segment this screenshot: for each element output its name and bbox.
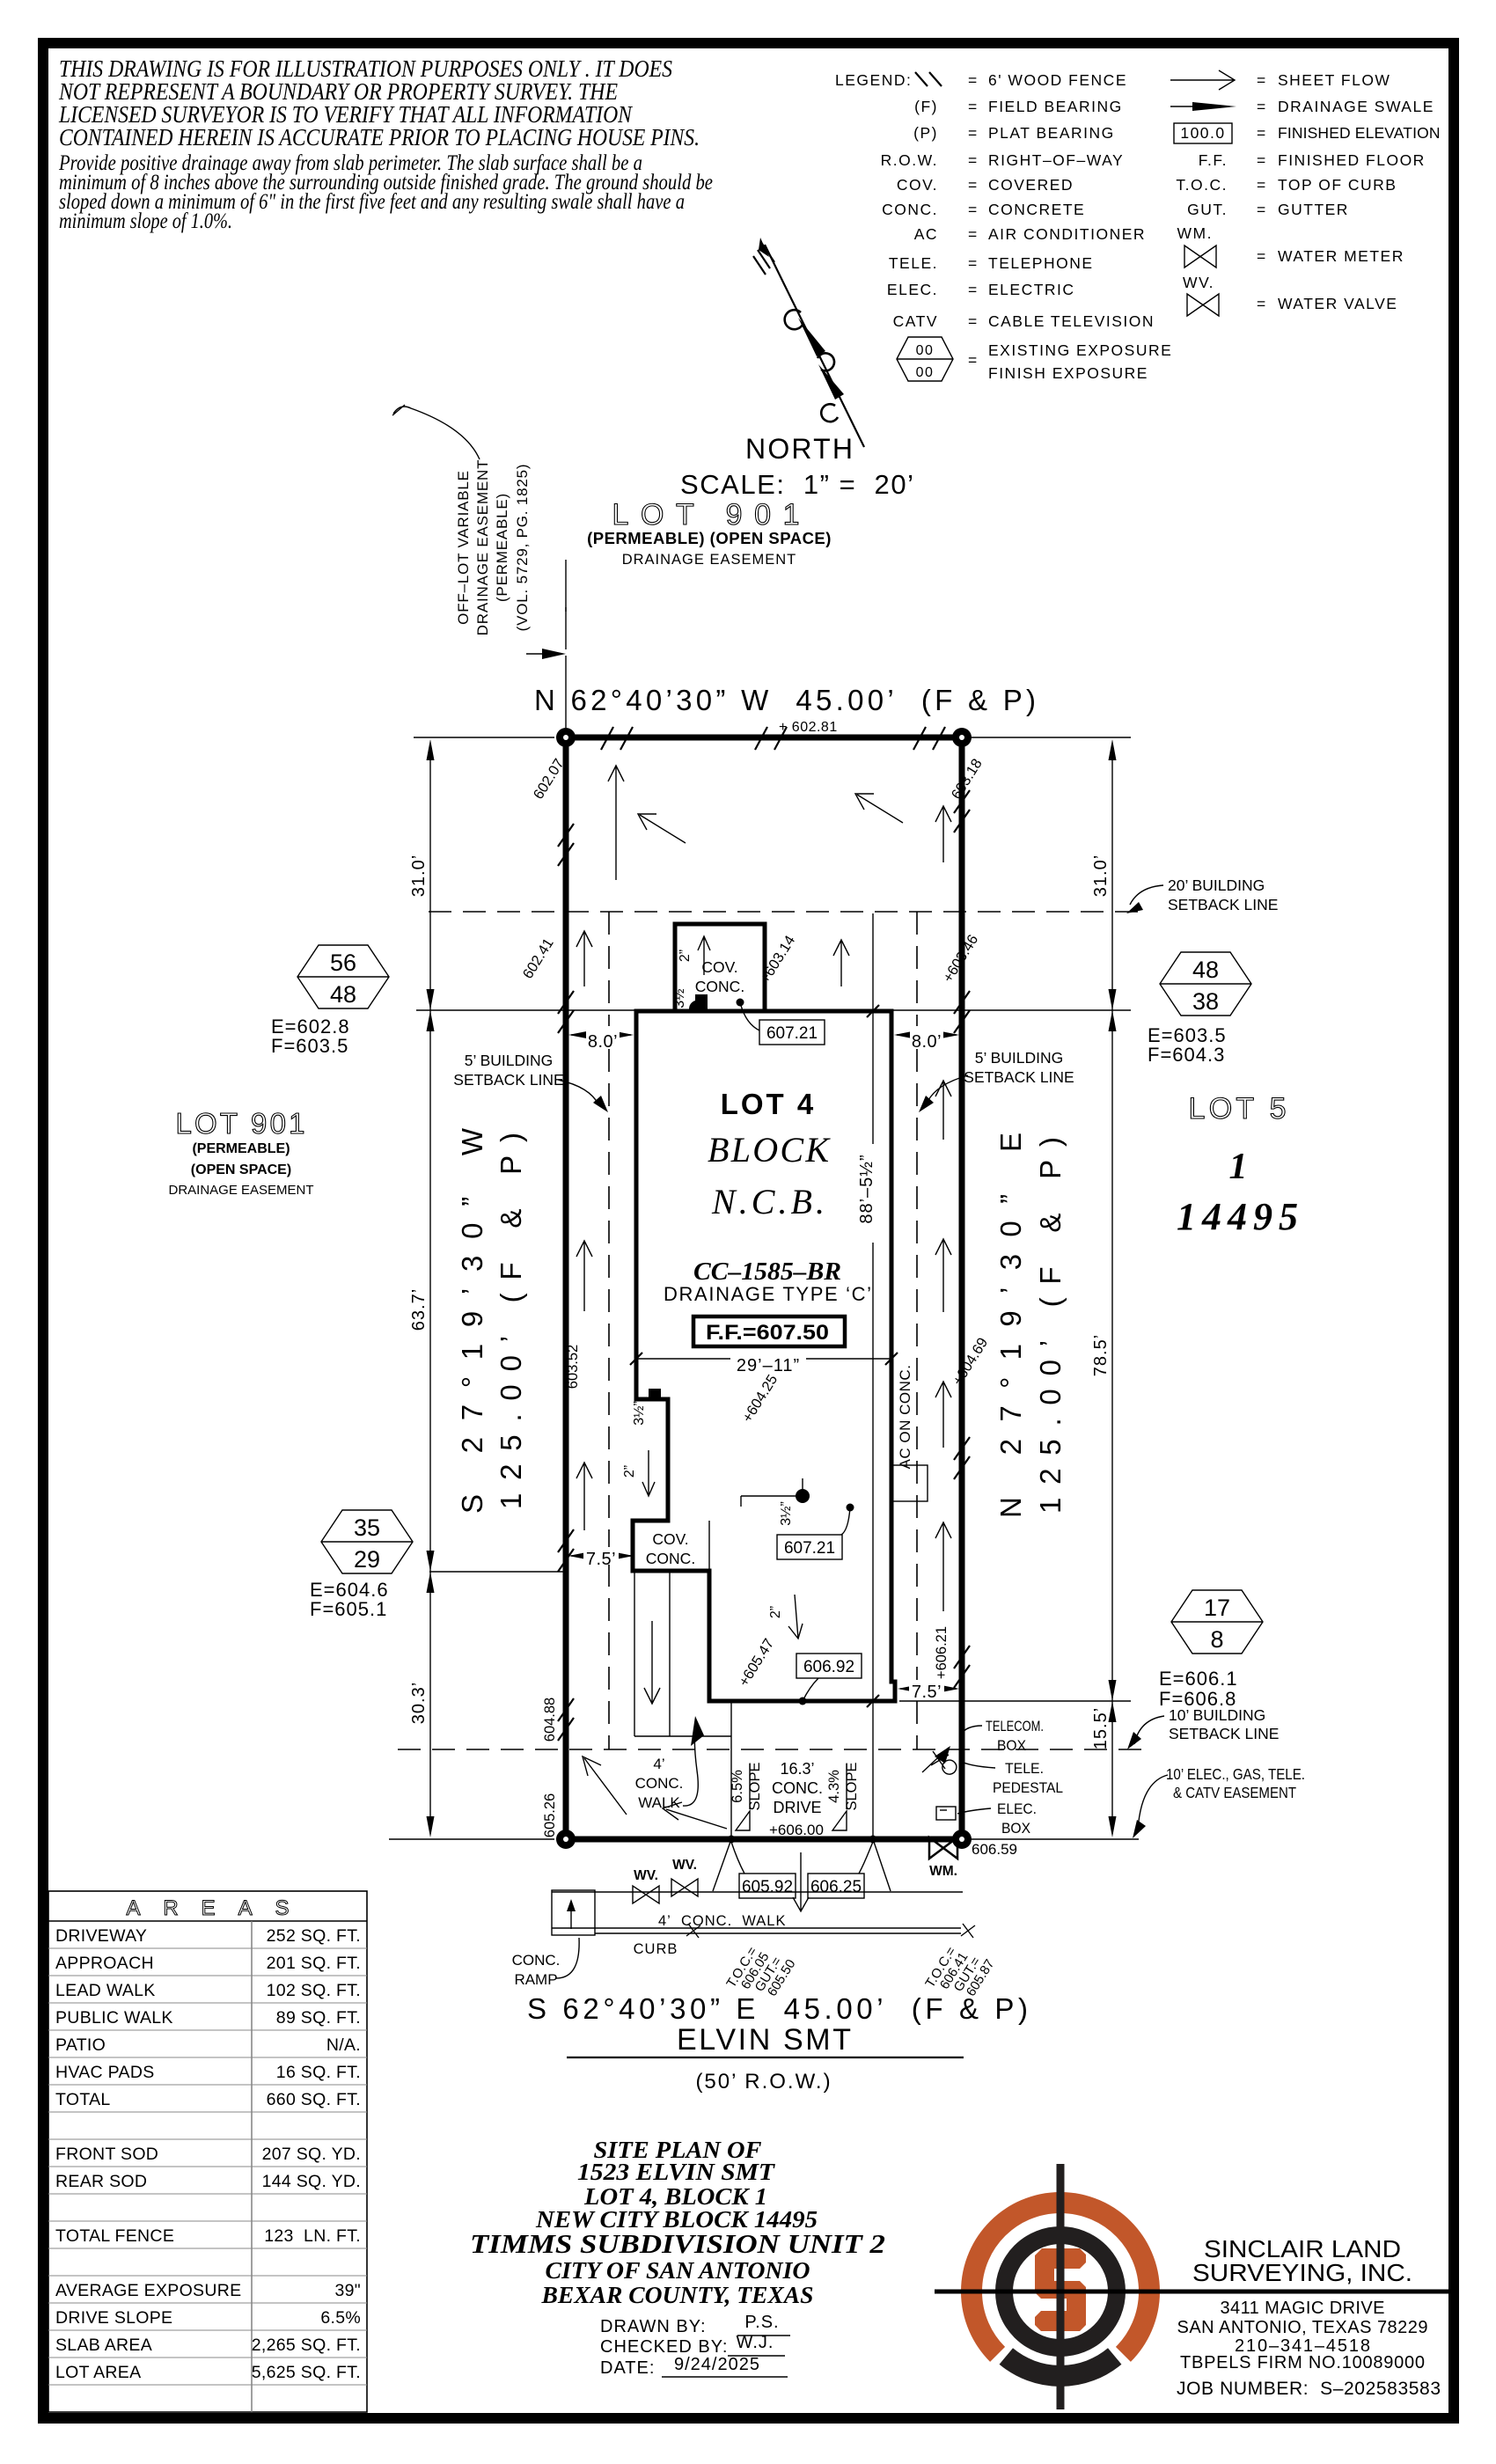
svg-text:TELE.: TELE.	[889, 254, 938, 272]
svg-text:10’ BUILDING: 10’ BUILDING	[1169, 1706, 1265, 1724]
svg-text:TELE.: TELE.	[1005, 1760, 1044, 1777]
svg-text:RIGHT–OF–WAY: RIGHT–OF–WAY	[988, 151, 1124, 169]
svg-text:=: =	[968, 281, 979, 298]
svg-text:BEXAR COUNTY, TEXAS: BEXAR COUNTY, TEXAS	[540, 2282, 813, 2308]
svg-text:LOT 4: LOT 4	[721, 1088, 817, 1120]
svg-text:RAMP: RAMP	[514, 1971, 557, 1988]
svg-text:WATER VALVE: WATER VALVE	[1278, 295, 1397, 312]
svg-text:102 SQ. FT.: 102 SQ. FT.	[267, 1981, 361, 2000]
svg-text:WATER METER: WATER METER	[1278, 247, 1404, 265]
svg-text:SETBACK LINE: SETBACK LINE	[964, 1068, 1074, 1086]
svg-text:2,265 SQ. FT.: 2,265 SQ. FT.	[252, 2336, 361, 2355]
svg-text:CONTAINED HEREIN IS ACCURATE P: CONTAINED HEREIN IS ACCURATE PRIOR TO PL…	[59, 124, 700, 150]
svg-text:8: 8	[1210, 1626, 1223, 1653]
svg-text:GUT.: GUT.	[1187, 201, 1228, 218]
svg-text:606.92: 606.92	[803, 1658, 854, 1676]
svg-text:CONC.: CONC.	[635, 1775, 684, 1792]
svg-text:COVERED: COVERED	[988, 176, 1074, 194]
svg-text:APPROACH: APPROACH	[55, 1954, 154, 1973]
svg-text:30.3’: 30.3’	[409, 1682, 429, 1724]
svg-text:N.C.B.: N.C.B.	[711, 1182, 825, 1221]
svg-text:TOTAL: TOTAL	[55, 2090, 111, 2109]
svg-text:39": 39"	[334, 2281, 361, 2300]
svg-text:BOX: BOX	[1001, 1820, 1030, 1837]
svg-text:AC ON CONC.: AC ON CONC.	[897, 1365, 913, 1470]
svg-text:=: =	[968, 351, 979, 369]
svg-text:DRAINAGE SWALE: DRAINAGE SWALE	[1278, 98, 1434, 115]
svg-text:31.0’: 31.0’	[1091, 854, 1111, 897]
svg-text:+ 602.81: + 602.81	[779, 720, 838, 735]
svg-text:SCALE: 1” = 20’: SCALE: 1” = 20’	[680, 469, 913, 500]
svg-text:LEAD WALK: LEAD WALK	[55, 1981, 156, 2000]
svg-text:COV.: COV.	[897, 176, 938, 194]
svg-text:F.F.: F.F.	[1199, 151, 1228, 169]
svg-text:=: =	[1257, 201, 1267, 218]
svg-text:+606.00: +606.00	[769, 1822, 824, 1838]
svg-text:TBPELS FIRM NO.10089000: TBPELS FIRM NO.10089000	[1180, 2353, 1425, 2372]
svg-text:FINISHED FLOOR: FINISHED FLOOR	[1278, 151, 1426, 169]
svg-text:252 SQ. FT.: 252 SQ. FT.	[267, 1926, 361, 1946]
svg-text:CC–1585–BR: CC–1585–BR	[693, 1258, 841, 1286]
svg-text:=: =	[1257, 71, 1267, 89]
svg-text:5’ BUILDING: 5’ BUILDING	[975, 1049, 1064, 1067]
svg-text:201 SQ. FT.: 201 SQ. FT.	[267, 1954, 361, 1973]
svg-text:BOX: BOX	[997, 1737, 1026, 1754]
svg-text:F=603.5: F=603.5	[271, 1035, 348, 1057]
svg-text:F=604.3: F=604.3	[1148, 1044, 1225, 1066]
svg-text:LEGEND:: LEGEND:	[835, 71, 912, 89]
svg-text:& CATV EASEMENT: & CATV EASEMENT	[1173, 1784, 1296, 1801]
svg-text:31.0’: 31.0’	[409, 854, 429, 897]
svg-text:2”: 2”	[678, 950, 693, 962]
svg-text:29: 29	[354, 1546, 380, 1573]
svg-text:TOTAL FENCE: TOTAL FENCE	[55, 2226, 174, 2246]
svg-text:(VOL. 5729, PG. 1825): (VOL. 5729, PG. 1825)	[514, 464, 531, 632]
svg-text:48: 48	[330, 981, 356, 1008]
svg-text:DRAINAGE TYPE ‘C’: DRAINAGE TYPE ‘C’	[664, 1283, 871, 1305]
svg-text:15.5’: 15.5’	[1091, 1707, 1111, 1749]
svg-text:DRAWN BY:: DRAWN BY:	[600, 2317, 707, 2336]
svg-text:38: 38	[1192, 988, 1219, 1015]
svg-text:CURB: CURB	[634, 1941, 678, 1957]
svg-text:WV.: WV.	[672, 1858, 697, 1873]
svg-text:+606.21: +606.21	[934, 1626, 950, 1679]
svg-text:=: =	[968, 201, 979, 218]
svg-text:6.5%: 6.5%	[320, 2308, 361, 2328]
svg-text:=: =	[1257, 176, 1267, 194]
svg-text:EXISTING EXPOSURE: EXISTING EXPOSURE	[988, 341, 1172, 359]
svg-text:FRONT SOD: FRONT SOD	[55, 2145, 158, 2164]
svg-text:2”: 2”	[622, 1465, 637, 1478]
svg-text:FIELD BEARING: FIELD BEARING	[988, 98, 1123, 115]
svg-text:144 SQ. YD.: 144 SQ. YD.	[262, 2172, 361, 2191]
svg-text:LOT 901: LOT 901	[176, 1107, 305, 1140]
svg-text:BLOCK: BLOCK	[708, 1130, 831, 1170]
svg-text:SETBACK LINE: SETBACK LINE	[453, 1071, 563, 1089]
svg-text:DRAINAGE EASEMENT: DRAINAGE EASEMENT	[622, 552, 797, 568]
svg-text:LOT AREA: LOT AREA	[55, 2363, 141, 2382]
svg-text:606.25: 606.25	[810, 1878, 862, 1896]
svg-text:SETBACK LINE: SETBACK LINE	[1169, 1725, 1279, 1742]
svg-text:3½”: 3½”	[779, 1501, 794, 1526]
svg-text:88’–5½”: 88’–5½”	[857, 1154, 876, 1223]
svg-text:16 SQ. FT.: 16 SQ. FT.	[276, 2063, 361, 2082]
svg-text:=: =	[968, 98, 979, 115]
svg-text:605.92: 605.92	[742, 1878, 793, 1896]
svg-text:TELECOM.: TELECOM.	[986, 1718, 1044, 1734]
svg-text:E=606.1: E=606.1	[1159, 1668, 1238, 1690]
svg-text:AVERAGE EXPOSURE: AVERAGE EXPOSURE	[55, 2281, 241, 2300]
svg-text:(PERMEABLE): (PERMEABLE)	[192, 1141, 290, 1156]
svg-text:123 LN. FT.: 123 LN. FT.	[264, 2226, 361, 2246]
svg-text:PLAT BEARING: PLAT BEARING	[988, 124, 1115, 142]
svg-text:89 SQ. FT.: 89 SQ. FT.	[276, 2008, 361, 2028]
svg-text:00: 00	[916, 343, 935, 358]
svg-text:SHEET FLOW: SHEET FLOW	[1278, 71, 1390, 89]
svg-text:T.O.C.: T.O.C.	[1176, 176, 1228, 194]
svg-text:DRAINAGE EASEMENT: DRAINAGE EASEMENT	[474, 459, 491, 636]
svg-text:(PERMEABLE): (PERMEABLE)	[494, 493, 510, 602]
svg-text:CABLE TELEVISION: CABLE TELEVISION	[988, 312, 1155, 330]
svg-text:COV.: COV.	[652, 1530, 688, 1548]
svg-text:CHECKED BY:: CHECKED BY:	[600, 2337, 728, 2357]
svg-text:2”: 2”	[768, 1606, 783, 1618]
svg-text:TELEPHONE: TELEPHONE	[988, 254, 1094, 272]
svg-text:CONCRETE: CONCRETE	[988, 201, 1085, 218]
svg-text:4.3%: 4.3%	[826, 1770, 842, 1803]
svg-text:=: =	[1257, 247, 1267, 265]
svg-text:WM.: WM.	[929, 1864, 957, 1879]
svg-text:(OPEN SPACE): (OPEN SPACE)	[191, 1162, 291, 1177]
svg-text:AIR CONDITIONER: AIR CONDITIONER	[988, 225, 1146, 243]
svg-text:=: =	[1257, 98, 1267, 115]
svg-text:=: =	[1257, 295, 1267, 312]
svg-text:TIMMS SUBDIVISION UNIT 2: TIMMS SUBDIVISION UNIT 2	[470, 2228, 885, 2259]
svg-text:6.5%: 6.5%	[730, 1770, 745, 1803]
svg-text:7.5’: 7.5’	[912, 1683, 942, 1702]
svg-text:(P): (P)	[913, 124, 938, 142]
svg-text:ELVIN SMT: ELVIN SMT	[677, 2023, 851, 2057]
svg-text:3411 MAGIC DRIVE: 3411 MAGIC DRIVE	[1221, 2299, 1385, 2318]
svg-text:LOT 5: LOT 5	[1189, 1092, 1287, 1126]
svg-text:CONC.: CONC.	[695, 978, 744, 995]
svg-text:CONC.: CONC.	[646, 1550, 695, 1567]
svg-text:REAR SOD: REAR SOD	[55, 2172, 147, 2191]
svg-text:1523 ELVIN SMT: 1523 ELVIN SMT	[577, 2159, 776, 2185]
svg-text:100.0: 100.0	[1180, 124, 1225, 142]
svg-text:SAN ANTONIO, TEXAS 78229: SAN ANTONIO, TEXAS 78229	[1177, 2318, 1428, 2337]
svg-text:7.5’: 7.5’	[586, 1550, 616, 1569]
svg-text:WV.: WV.	[634, 1868, 658, 1883]
svg-text:ELECTRIC: ELECTRIC	[988, 281, 1075, 298]
svg-text:63.7’: 63.7’	[409, 1288, 429, 1331]
svg-text:10’ ELEC., GAS, TELE.: 10’ ELEC., GAS, TELE.	[1166, 1765, 1305, 1783]
svg-text:HVAC PADS: HVAC PADS	[55, 2063, 155, 2082]
svg-text:78.5’: 78.5’	[1091, 1334, 1111, 1376]
svg-text:DATE:: DATE:	[600, 2358, 655, 2378]
svg-text:FINISHED ELEVATION: FINISHED ELEVATION	[1278, 124, 1441, 142]
svg-text:OFF–LOT VARIABLE: OFF–LOT VARIABLE	[455, 470, 472, 625]
svg-text:DRIVE: DRIVE	[773, 1799, 821, 1816]
svg-text:GUTTER: GUTTER	[1278, 201, 1349, 218]
svg-text:AC: AC	[914, 225, 938, 243]
svg-text:603.52: 603.52	[565, 1345, 581, 1389]
svg-text:14495: 14495	[1177, 1195, 1298, 1238]
svg-text:WV.: WV.	[1183, 274, 1214, 291]
svg-text:PUBLIC WALK: PUBLIC WALK	[55, 2008, 173, 2028]
svg-text:=: =	[968, 254, 979, 272]
svg-text:JOB NUMBER: S–202583583: JOB NUMBER: S–202583583	[1177, 2379, 1441, 2399]
svg-text:CONC.: CONC.	[772, 1779, 823, 1797]
svg-text:=: =	[1257, 124, 1267, 142]
svg-text:=: =	[968, 71, 979, 89]
svg-text:SLAB AREA: SLAB AREA	[55, 2336, 152, 2355]
svg-text:WALK: WALK	[638, 1794, 680, 1811]
svg-text:1: 1	[1229, 1147, 1248, 1187]
svg-text:(F): (F)	[914, 98, 938, 115]
svg-text:16.3’: 16.3’	[780, 1760, 814, 1778]
svg-text:=: =	[968, 312, 979, 330]
svg-text:48: 48	[1192, 957, 1219, 983]
svg-text:minimum slope of 1.0%.: minimum slope of 1.0%.	[59, 209, 232, 233]
svg-text:604.88: 604.88	[542, 1698, 558, 1742]
svg-text:CATV: CATV	[893, 312, 938, 330]
svg-text:=: =	[1257, 151, 1267, 169]
svg-text:56: 56	[330, 950, 356, 976]
svg-text:=: =	[968, 176, 979, 194]
svg-text:TOP OF CURB: TOP OF CURB	[1278, 176, 1397, 194]
svg-text:5,625 SQ. FT.: 5,625 SQ. FT.	[252, 2363, 361, 2382]
svg-text:606.59: 606.59	[972, 1841, 1017, 1858]
svg-text:20’ BUILDING: 20’ BUILDING	[1168, 876, 1265, 894]
svg-text:35: 35	[354, 1514, 380, 1541]
svg-text:207 SQ. YD.: 207 SQ. YD.	[262, 2145, 361, 2164]
svg-text:P.S.: P.S.	[744, 2313, 779, 2332]
svg-text:NORTH: NORTH	[745, 433, 853, 465]
svg-text:ELEC.: ELEC.	[997, 1800, 1037, 1817]
svg-text:DRIVEWAY: DRIVEWAY	[55, 1926, 147, 1946]
svg-text:SETBACK LINE: SETBACK LINE	[1168, 896, 1278, 913]
svg-text:607.21: 607.21	[784, 1539, 835, 1558]
svg-text:(PERMEABLE) (OPEN SPACE): (PERMEABLE) (OPEN SPACE)	[587, 529, 832, 547]
svg-text:ELEC.: ELEC.	[887, 281, 938, 298]
svg-text:WM.: WM.	[1177, 224, 1213, 242]
svg-text:DRAINAGE EASEMENT: DRAINAGE EASEMENT	[168, 1183, 313, 1198]
svg-text:660 SQ. FT.: 660 SQ. FT.	[267, 2090, 361, 2109]
svg-text:9/24/2025: 9/24/2025	[674, 2355, 760, 2374]
svg-text:17: 17	[1204, 1595, 1230, 1621]
svg-text:6' WOOD FENCE: 6' WOOD FENCE	[988, 71, 1127, 89]
svg-text:N/A.: N/A.	[326, 2035, 361, 2055]
svg-text:FINISH EXPOSURE: FINISH EXPOSURE	[988, 364, 1148, 382]
svg-text:=: =	[968, 151, 979, 169]
svg-text:=: =	[968, 225, 979, 243]
svg-text:F=605.1: F=605.1	[310, 1598, 387, 1620]
svg-text:DRIVE SLOPE: DRIVE SLOPE	[55, 2308, 172, 2328]
svg-text:4’ CONC. WALK: 4’ CONC. WALK	[658, 1913, 787, 1929]
svg-text:R.O.W.: R.O.W.	[881, 151, 938, 169]
svg-text:3½”: 3½”	[672, 984, 687, 1008]
svg-text:3½”: 3½”	[632, 1401, 647, 1426]
svg-text:(50’ R.O.W.): (50’ R.O.W.)	[695, 2070, 832, 2094]
svg-text:=: =	[968, 124, 979, 142]
svg-text:F.F.=607.50: F.F.=607.50	[706, 1321, 829, 1345]
svg-text:W.J.: W.J.	[737, 2333, 774, 2352]
svg-text:4’: 4’	[653, 1756, 664, 1772]
svg-text:8.0’: 8.0’	[912, 1032, 942, 1052]
svg-text:5’ BUILDING: 5’ BUILDING	[465, 1052, 554, 1069]
svg-text:COV.: COV.	[701, 958, 737, 976]
svg-text:CITY OF SAN ANTONIO: CITY OF SAN ANTONIO	[546, 2257, 810, 2284]
svg-text:00: 00	[916, 365, 935, 380]
svg-text:PATIO: PATIO	[55, 2035, 106, 2055]
svg-text:CONC.: CONC.	[512, 1952, 561, 1969]
svg-text:8.0’: 8.0’	[588, 1032, 618, 1052]
svg-text:PEDESTAL: PEDESTAL	[993, 1779, 1063, 1796]
svg-text:SURVEYING, INC.: SURVEYING, INC.	[1192, 2259, 1412, 2286]
svg-text:CONC.: CONC.	[882, 201, 938, 218]
svg-text:605.26: 605.26	[542, 1793, 558, 1837]
svg-text:607.21: 607.21	[766, 1024, 818, 1043]
